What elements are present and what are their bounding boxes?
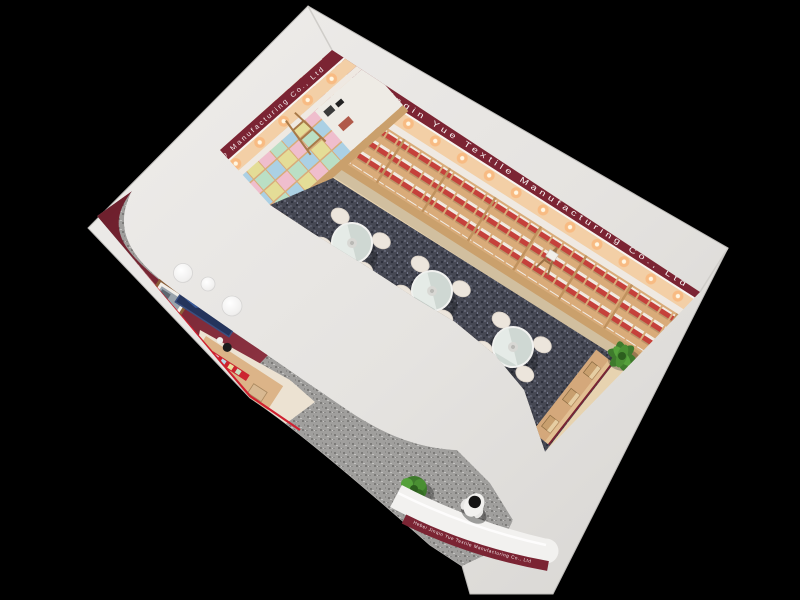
- pendant-light: [174, 264, 193, 283]
- showroom-render: Hebei Jinqin Yue Textile Manufacturing C…: [0, 0, 800, 600]
- render-canvas: Hebei Jinqin Yue Textile Manufacturing C…: [0, 0, 800, 600]
- pendant-light: [201, 277, 215, 291]
- pendant-light: [222, 296, 242, 316]
